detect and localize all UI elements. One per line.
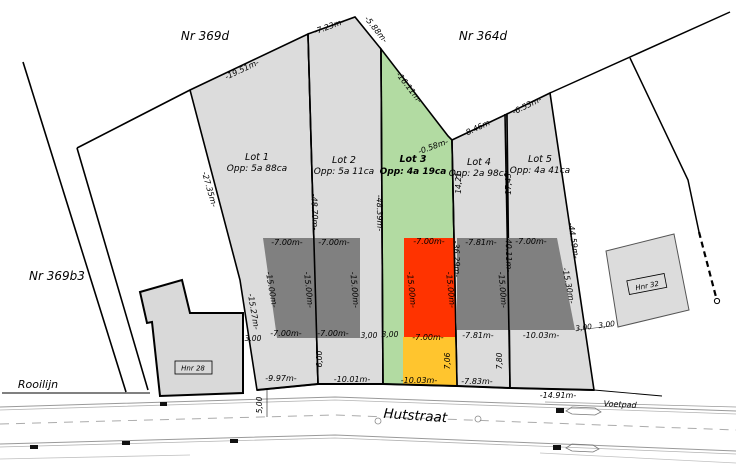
dim-b12: -48.70m-	[309, 194, 319, 231]
road-marking-block	[160, 402, 167, 406]
dim-front-lot2: -10.01m-	[334, 375, 371, 384]
house-hnr28	[140, 280, 243, 396]
dim-setback-z1: 3,00	[245, 334, 262, 343]
dim-front-lot4: -7.83m-	[461, 377, 492, 386]
dim-z5-bottom: -10.03m-	[523, 331, 560, 340]
lot4-name: Lot 4	[467, 157, 491, 168]
building-zone-lot4-5	[457, 238, 575, 330]
cadastral-plan-page: Hnr 28 Hnr 32 Nr 369d Nr 364d Nr 369b3 R…	[0, 0, 736, 464]
dim-depth-lot4: 7,80	[495, 352, 504, 369]
dim-depth-lot2: 6,00	[315, 350, 324, 367]
northeast-boundary	[550, 12, 730, 93]
region-label-369b3: Nr 369b3	[29, 269, 85, 283]
road-marking-block	[230, 439, 238, 443]
dim-z3-top: -7.00m-	[413, 237, 444, 246]
sidewalk-edge	[545, 402, 736, 407]
dim-z5-top: -7.00m-	[515, 237, 546, 246]
house-28-label: Hnr 28	[175, 361, 212, 374]
dim-z1-bottom: -7.00m-	[270, 329, 301, 338]
road-marking-blocks	[30, 402, 564, 450]
lot3-area: Opp: 4a 19ca	[380, 167, 447, 177]
dim-front-lot5: -14.91m-	[540, 391, 577, 400]
dim-z4-top: -7.81m-	[465, 238, 496, 247]
lot1-name: Lot 1	[245, 152, 269, 163]
rooilijn-label: Rooilijn	[18, 378, 58, 391]
dim-setback-z3: 3,00	[382, 330, 399, 339]
cadastral-plan-drawing: Hnr 28 Hnr 32 Nr 369d Nr 364d Nr 369b3 R…	[0, 0, 736, 464]
west-outer-boundary	[23, 62, 126, 392]
dim-depth-lot3: 7,06	[443, 352, 452, 369]
dim-z4-bottom: -7.81m-	[462, 331, 493, 340]
dim-b45: -40.11m-	[504, 236, 514, 273]
region-label-364d: Nr 364d	[459, 29, 508, 43]
road-marking-block	[30, 445, 38, 449]
dim-z1-top: -7.00m-	[271, 238, 302, 247]
lot1-area: Opp: 5a 88ca	[227, 164, 287, 174]
region-label-369d: Nr 369d	[181, 29, 230, 43]
road-marking-block	[553, 445, 561, 450]
house-28-label-text: Hnr 28	[181, 365, 205, 373]
lot3-name: Lot 3	[399, 154, 426, 165]
road-marking-block	[556, 408, 564, 413]
street-bottom-edge-1	[0, 435, 736, 451]
dim-setback-z2: 3,00	[361, 331, 378, 340]
dim-z2-top: -7.00m-	[318, 238, 349, 247]
dim-verge: 5,00	[255, 396, 264, 413]
lot2-area: Opp: 5a 11ca	[314, 167, 374, 177]
sidewalk-label: Voetpad	[603, 399, 637, 410]
dim-b34-upper: 14,21	[454, 172, 463, 193]
east-fence-dashed	[699, 232, 716, 297]
dim-front-lot1: -9.97m-	[265, 374, 296, 383]
street-center-dashed	[0, 415, 736, 430]
east-neighbour-boundary	[630, 58, 699, 232]
lot5-area: Opp: 4a 41ca	[510, 166, 570, 176]
lot5-name: Lot 5	[528, 154, 552, 165]
street-lower-edge-left	[0, 455, 190, 459]
lot2-name: Lot 2	[332, 155, 356, 166]
dim-z2-bottom: -7.00m-	[317, 329, 348, 338]
dim-z3-bottom: -7.00m-	[412, 333, 443, 342]
fence-end-marker	[714, 298, 719, 303]
dim-front-lot3: -10.03m-	[401, 376, 438, 385]
manhole-circle	[375, 418, 381, 424]
dim-setback-z5: 3,00	[575, 322, 593, 333]
dim-b23: -48.39m-	[375, 195, 385, 232]
street-bottom-edge-2	[0, 438, 736, 454]
dim-b45-upper: 17,45	[504, 173, 513, 195]
street-name-label: Hutstraat	[383, 406, 448, 426]
northwest-edge	[77, 90, 190, 148]
front-line-extension	[594, 390, 662, 396]
manhole-circle	[475, 416, 481, 422]
street-lower-edge-right	[540, 453, 736, 463]
road-marking-block	[122, 441, 130, 445]
dim-setback-house32: 3,00	[598, 319, 616, 330]
